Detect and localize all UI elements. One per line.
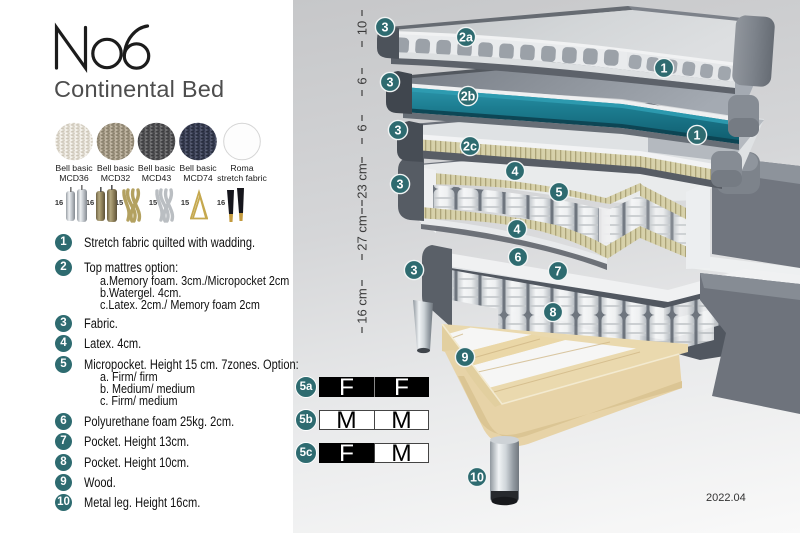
svg-text:10: 10 [355, 21, 370, 35]
svg-text:9: 9 [462, 351, 469, 365]
svg-text:4: 4 [512, 165, 519, 179]
svg-text:15: 15 [181, 198, 189, 207]
svg-text:3: 3 [382, 21, 389, 35]
svg-text:3: 3 [395, 124, 402, 138]
svg-text:15: 15 [149, 198, 157, 207]
svg-text:MCD74: MCD74 [183, 173, 213, 183]
svg-text:MCD36: MCD36 [59, 173, 89, 183]
svg-text:3: 3 [387, 76, 394, 90]
svg-text:Roma: Roma [230, 163, 253, 173]
svg-text:3: 3 [397, 178, 404, 192]
svg-text:MCD32: MCD32 [101, 173, 131, 183]
svg-text:10: 10 [470, 471, 484, 485]
svg-text:16: 16 [217, 198, 225, 207]
svg-text:Bell basic: Bell basic [97, 163, 135, 173]
svg-text:1: 1 [661, 62, 668, 76]
svg-text:6: 6 [355, 124, 370, 131]
svg-text:4: 4 [514, 223, 521, 237]
svg-text:stretch fabric: stretch fabric [217, 173, 267, 183]
svg-text:16: 16 [86, 198, 94, 207]
svg-text:3: 3 [411, 264, 418, 278]
svg-text:7: 7 [555, 265, 562, 279]
svg-text:2b: 2b [461, 90, 476, 104]
svg-text:5: 5 [556, 186, 563, 200]
svg-text:8: 8 [550, 306, 557, 320]
svg-text:MCD43: MCD43 [142, 173, 172, 183]
svg-text:1: 1 [694, 129, 701, 143]
svg-text:6: 6 [355, 77, 370, 84]
svg-text:2c: 2c [463, 140, 477, 154]
svg-text:23 cm: 23 cm [355, 163, 370, 198]
svg-text:6: 6 [515, 251, 522, 265]
svg-text:16: 16 [55, 198, 63, 207]
svg-text:Bell basic: Bell basic [138, 163, 176, 173]
svg-text:Continental Bed: Continental Bed [54, 76, 224, 102]
svg-text:27 cm: 27 cm [355, 215, 370, 250]
svg-text:Bell basic: Bell basic [55, 163, 93, 173]
svg-text:2a: 2a [459, 31, 474, 45]
svg-text:16 cm: 16 cm [355, 288, 370, 323]
svg-text:Bell basic: Bell basic [179, 163, 217, 173]
